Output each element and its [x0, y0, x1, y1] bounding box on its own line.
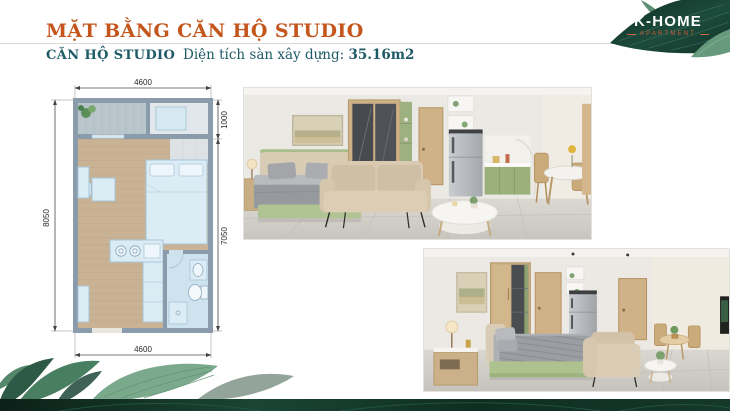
page-title: MẶT BẰNG CĂN HỘ STUDIO — [46, 20, 364, 42]
wall-art — [457, 273, 487, 312]
bathroom — [163, 250, 208, 328]
bed — [146, 160, 207, 244]
ac-closet — [150, 103, 208, 134]
desk — [78, 167, 89, 198]
brand-logo: K-HOME APARTMENT — [612, 13, 724, 37]
area-text: Diện tích sàn xây dựng: 35.16m2 — [183, 47, 414, 63]
spotlight-icon — [572, 252, 575, 255]
toilet — [189, 285, 209, 301]
wall-segment — [78, 134, 92, 139]
brand-logo-name: K-HOME — [612, 13, 724, 30]
entry-tile — [170, 139, 208, 163]
door — [535, 273, 561, 338]
entrance-opening — [92, 328, 122, 333]
area-value: 35.16m2 — [348, 47, 414, 63]
dim-top-label: 4600 — [134, 78, 152, 87]
wall-art — [293, 116, 343, 146]
entry-door — [619, 279, 647, 340]
sink — [193, 264, 203, 277]
sink — [144, 244, 160, 258]
floorplan-drawing: 4600 4600 8050 1000 7050 — [30, 76, 240, 366]
tv — [720, 296, 729, 333]
ac-unit — [156, 107, 186, 130]
spotlight-icon — [626, 253, 629, 256]
leaf — [92, 364, 218, 400]
cabinet — [78, 286, 89, 322]
leaf — [198, 374, 294, 399]
slide-canvas: MẶT BẰNG CĂN HỘ STUDIO CĂN HỘ STUDIO Diệ… — [0, 0, 730, 411]
dim-right-upper-label: 1000 — [220, 111, 229, 129]
interior-photo-living — [243, 87, 592, 240]
ceiling — [424, 249, 729, 257]
brand-logo-tagline: APARTMENT — [612, 31, 724, 37]
balcony — [78, 103, 146, 134]
fridge — [449, 129, 483, 196]
wall-segment — [124, 134, 208, 139]
dim-right-lower-label: 7050 — [220, 227, 229, 245]
wood-panel — [582, 104, 591, 195]
unit-type-label: CĂN HỘ STUDIO — [46, 48, 175, 63]
area-label: Diện tích sàn xây dựng: — [183, 47, 344, 63]
kitchen-cabinets — [485, 135, 531, 194]
ceiling — [244, 88, 591, 95]
footer-leaves-decoration — [0, 353, 730, 411]
shower — [169, 302, 187, 324]
title-underline — [0, 43, 648, 44]
dim-left-label: 8050 — [42, 209, 51, 227]
sliding-door — [92, 135, 124, 138]
balcony-divider-wall — [146, 103, 150, 134]
